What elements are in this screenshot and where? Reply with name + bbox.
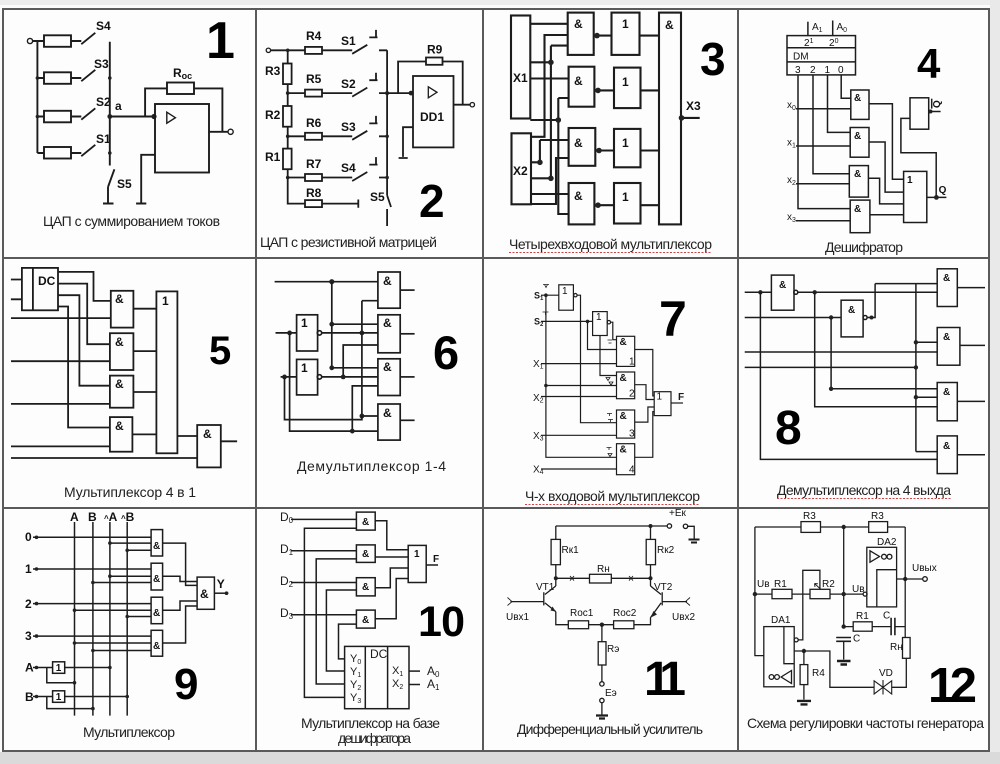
svg-text:Rк2: Rк2 bbox=[657, 545, 675, 556]
svg-text:B: B bbox=[25, 690, 34, 704]
svg-text:&: & bbox=[943, 441, 950, 452]
svg-text:4: 4 bbox=[917, 40, 941, 87]
svg-text:&: & bbox=[362, 549, 369, 560]
svg-text:&: & bbox=[620, 411, 627, 422]
svg-text:R9: R9 bbox=[427, 43, 443, 57]
svg-text:Дифференциальный усилитель: Дифференциальный усилитель bbox=[517, 721, 703, 737]
svg-text:1: 1 bbox=[301, 316, 308, 330]
svg-text:R1: R1 bbox=[774, 579, 787, 590]
svg-text:Uв: Uв bbox=[757, 579, 770, 590]
svg-text:1: 1 bbox=[907, 175, 913, 186]
svg-text:&: & bbox=[115, 292, 124, 306]
svg-text:Uвых: Uвых bbox=[912, 563, 937, 574]
svg-text:X3: X3 bbox=[686, 99, 701, 113]
svg-text:&: & bbox=[362, 517, 369, 528]
svg-text:DC: DC bbox=[370, 647, 388, 661]
svg-text:1: 1 bbox=[596, 312, 602, 323]
svg-text:R1: R1 bbox=[856, 611, 869, 622]
svg-text:DC: DC bbox=[38, 274, 56, 288]
svg-text:8: 8 bbox=[775, 402, 802, 455]
svg-text:S4: S4 bbox=[96, 19, 111, 33]
svg-text:Мультиплексор на базе: Мультиплексор на базе bbox=[301, 715, 440, 731]
svg-text:&: & bbox=[943, 332, 950, 343]
svg-text:&: & bbox=[854, 93, 861, 104]
svg-text:1: 1 bbox=[25, 562, 32, 576]
svg-text:Дешифратор: Дешифратор bbox=[825, 239, 903, 255]
svg-text:1: 1 bbox=[301, 361, 308, 375]
svg-text:VT1: VT1 bbox=[536, 582, 555, 593]
svg-text:дешифратора: дешифратора bbox=[338, 730, 411, 746]
svg-text:3: 3 bbox=[700, 33, 726, 85]
svg-text:Схема регулировки частоты гене: Схема регулировки частоты генератора bbox=[747, 715, 984, 731]
svg-text:12: 12 bbox=[928, 659, 977, 713]
svg-text:1: 1 bbox=[622, 190, 629, 204]
svg-text:ЦАП с резистивной матрицей: ЦАП с резистивной матрицей bbox=[260, 234, 437, 250]
svg-text:1: 1 bbox=[206, 12, 235, 70]
svg-text:Ч-х входовой мультиплексор: Ч-х входовой мультиплексор bbox=[525, 488, 700, 504]
svg-text:0: 0 bbox=[25, 530, 32, 544]
svg-text:R4: R4 bbox=[306, 29, 322, 43]
svg-text:S5: S5 bbox=[370, 190, 385, 204]
svg-text:R6: R6 bbox=[306, 116, 322, 130]
svg-text:X1: X1 bbox=[513, 71, 528, 85]
svg-text:2: 2 bbox=[810, 65, 816, 76]
svg-text:B: B bbox=[88, 510, 97, 524]
svg-text:1: 1 bbox=[414, 549, 420, 560]
svg-text:3: 3 bbox=[25, 629, 32, 643]
svg-text:1: 1 bbox=[562, 286, 568, 297]
svg-text:Четырехвходовой мультиплексор: Четырехвходовой мультиплексор bbox=[509, 236, 712, 252]
svg-text:&: & bbox=[574, 136, 583, 150]
svg-text:VD: VD bbox=[879, 668, 893, 679]
svg-text:Y: Y bbox=[217, 577, 225, 591]
svg-text:&: & bbox=[383, 316, 392, 330]
svg-text:&: & bbox=[854, 131, 861, 142]
svg-text:1: 1 bbox=[629, 357, 635, 368]
svg-text:S2: S2 bbox=[96, 95, 111, 109]
svg-text:Roc2: Roc2 bbox=[613, 608, 637, 619]
svg-text:&: & bbox=[574, 74, 583, 88]
svg-text:Мультиплексор: Мультиплексор bbox=[83, 724, 175, 740]
svg-text:&: & bbox=[362, 582, 369, 593]
svg-text:a: a bbox=[115, 99, 122, 113]
svg-text:Rн: Rн bbox=[597, 564, 610, 575]
svg-text:Uвх2: Uвх2 bbox=[672, 612, 696, 623]
svg-text:1: 1 bbox=[622, 136, 629, 150]
svg-text:&: & bbox=[620, 445, 627, 456]
svg-text:6: 6 bbox=[433, 326, 459, 379]
svg-text:&: & bbox=[203, 427, 212, 441]
svg-text:C: C bbox=[883, 611, 890, 622]
svg-text:S3: S3 bbox=[94, 57, 109, 71]
svg-text:10: 10 bbox=[418, 598, 465, 646]
svg-text:&: & bbox=[200, 587, 209, 601]
svg-text:C: C bbox=[853, 634, 860, 645]
svg-text:11: 11 bbox=[644, 653, 686, 706]
svg-text:R3: R3 bbox=[871, 511, 884, 522]
svg-text:1: 1 bbox=[622, 17, 629, 31]
svg-text:DM: DM bbox=[793, 52, 809, 63]
svg-text:Rн: Rн bbox=[890, 642, 903, 653]
svg-text:R8: R8 bbox=[306, 186, 322, 200]
svg-text:Демультиплексор на 4 выхда: Демультиплексор на 4 выхда bbox=[777, 482, 951, 498]
svg-text:4: 4 bbox=[629, 465, 635, 476]
svg-text:&: & bbox=[383, 274, 392, 288]
svg-text:S1: S1 bbox=[96, 132, 111, 146]
svg-text:&: & bbox=[943, 273, 950, 284]
svg-text:R1: R1 bbox=[265, 150, 281, 164]
svg-text:1: 1 bbox=[657, 392, 663, 403]
svg-text:1: 1 bbox=[56, 692, 62, 703]
svg-text:&: & bbox=[115, 377, 124, 391]
svg-text:R3: R3 bbox=[265, 64, 281, 78]
svg-text:&: & bbox=[854, 204, 861, 215]
svg-text:R4: R4 bbox=[812, 668, 825, 679]
svg-text:7: 7 bbox=[659, 291, 687, 347]
svg-text:&: & bbox=[574, 189, 583, 203]
svg-text:R3: R3 bbox=[803, 511, 816, 522]
svg-text:9: 9 bbox=[174, 660, 198, 709]
svg-text:&: & bbox=[779, 280, 786, 291]
svg-text:DA1: DA1 bbox=[771, 615, 791, 626]
svg-text:Мультиплексор 4 в 1: Мультиплексор 4 в 1 bbox=[64, 484, 196, 500]
svg-text:&: & bbox=[943, 387, 950, 398]
svg-text:Q: Q bbox=[932, 100, 943, 108]
svg-text:Uвх1: Uвх1 bbox=[506, 612, 530, 623]
svg-text:&: & bbox=[153, 541, 160, 552]
svg-text:2: 2 bbox=[629, 389, 635, 400]
svg-text:&: & bbox=[620, 373, 627, 384]
svg-text:1: 1 bbox=[162, 294, 169, 308]
svg-text:&: & bbox=[153, 608, 160, 619]
svg-text:Rк1: Rк1 bbox=[562, 545, 580, 556]
svg-text:&: & bbox=[383, 360, 392, 374]
svg-text:3: 3 bbox=[629, 429, 635, 440]
svg-text:R2: R2 bbox=[822, 579, 835, 590]
svg-text:S5: S5 bbox=[117, 177, 132, 191]
svg-text:DD1: DD1 bbox=[420, 110, 444, 124]
svg-text:2: 2 bbox=[419, 175, 445, 227]
svg-text:A: A bbox=[25, 661, 34, 675]
svg-text:S2: S2 bbox=[341, 77, 356, 91]
svg-text:R5: R5 bbox=[306, 72, 322, 86]
svg-text:A: A bbox=[70, 510, 79, 524]
svg-text:Еэ: Еэ bbox=[605, 688, 617, 699]
svg-text:&: & bbox=[153, 574, 160, 585]
svg-text:R7: R7 bbox=[306, 157, 322, 171]
svg-text:Roc1: Roc1 bbox=[570, 608, 594, 619]
svg-text:1: 1 bbox=[56, 663, 62, 674]
svg-text:&: & bbox=[574, 17, 583, 31]
svg-text:F: F bbox=[678, 392, 684, 403]
svg-text:&: & bbox=[115, 419, 124, 433]
svg-text:2: 2 bbox=[25, 597, 32, 611]
svg-text:&: & bbox=[848, 305, 855, 316]
svg-text:X2: X2 bbox=[513, 164, 528, 178]
svg-text:S1: S1 bbox=[341, 34, 356, 48]
svg-text:R2: R2 bbox=[265, 108, 281, 122]
svg-text:S3: S3 bbox=[341, 120, 356, 134]
svg-text:F: F bbox=[433, 554, 439, 565]
svg-text:Q: Q bbox=[939, 185, 947, 196]
svg-text:&: & bbox=[854, 169, 861, 180]
svg-text:&: & bbox=[620, 337, 627, 348]
svg-text:S4: S4 bbox=[341, 161, 356, 175]
svg-text:1: 1 bbox=[622, 75, 629, 89]
svg-text:&: & bbox=[153, 641, 160, 652]
svg-text:&: & bbox=[665, 18, 674, 32]
svg-text:0: 0 bbox=[838, 65, 844, 76]
svg-text:&: & bbox=[362, 615, 369, 626]
svg-text:5: 5 bbox=[209, 329, 231, 373]
svg-text:Rэ: Rэ bbox=[607, 644, 619, 655]
svg-text:+Ек: +Ек bbox=[669, 508, 687, 519]
svg-text:3: 3 bbox=[795, 65, 801, 76]
svg-text:1: 1 bbox=[825, 65, 831, 76]
svg-text:DA2: DA2 bbox=[877, 537, 897, 548]
svg-text:&: & bbox=[383, 406, 392, 420]
svg-text:&: & bbox=[115, 335, 124, 349]
svg-text:Демультиплексор 1-4: Демультиплексор 1-4 bbox=[297, 458, 446, 474]
svg-text:ЦАП с суммированием токов: ЦАП с суммированием токов bbox=[43, 213, 220, 229]
